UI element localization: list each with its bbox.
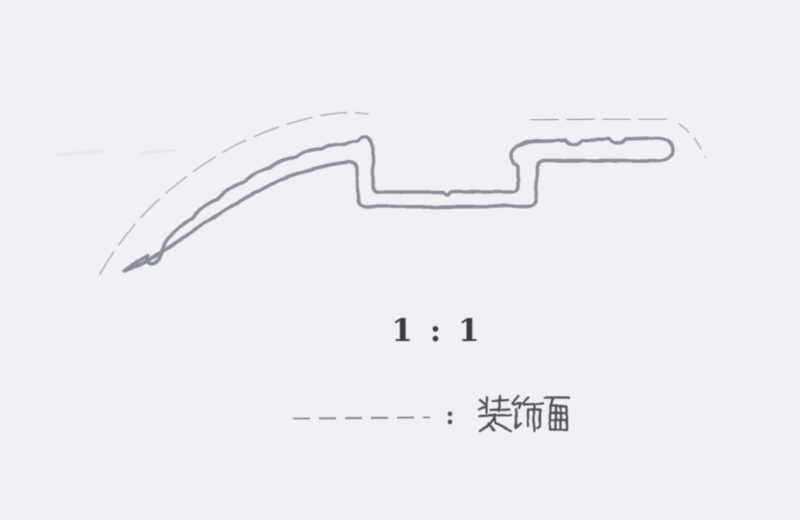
paper-grain-texture	[0, 0, 800, 520]
scale-label: 1 : 1	[391, 313, 482, 349]
legend-colon: :	[445, 401, 454, 430]
technical-drawing-canvas: 1 : 1 :	[0, 0, 800, 520]
scanned-drawing-page: 1 : 1 : 装饰面	[0, 0, 800, 520]
